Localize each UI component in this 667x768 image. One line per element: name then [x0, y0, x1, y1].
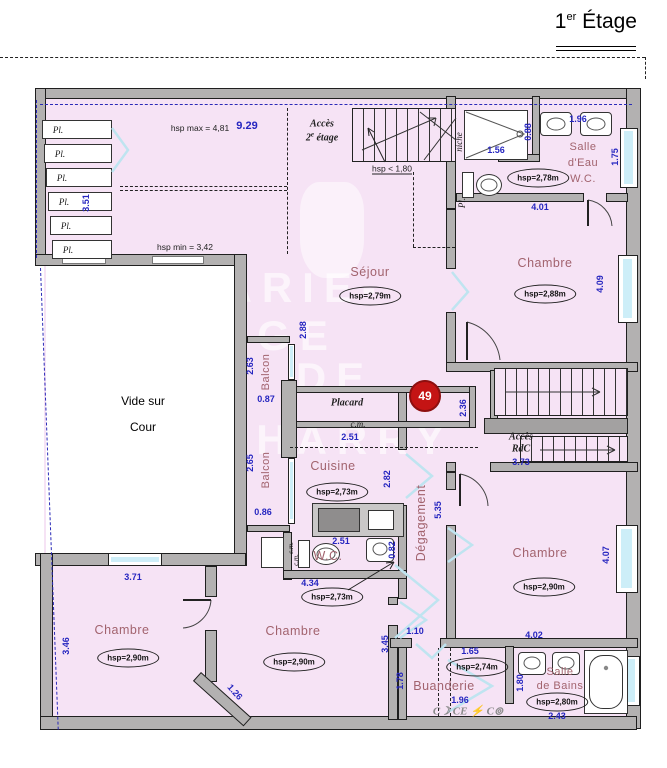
- room-label-cuisine: Cuisine: [310, 459, 355, 473]
- acces-rdc-1: Accès: [509, 432, 533, 443]
- lot-number-badge: 49: [409, 380, 441, 412]
- title-number: 1: [555, 10, 567, 33]
- hsp-chambre-bm: hsp=2,90m: [263, 653, 325, 672]
- dim: 0.82: [387, 541, 397, 559]
- closet-label: Pl.: [57, 173, 67, 183]
- hsp-chambre-tr: hsp=2,88m: [514, 285, 576, 304]
- closet: [50, 216, 112, 235]
- low-ceiling-zone: [413, 172, 414, 247]
- dim: 2.51: [341, 432, 359, 442]
- room-label-chambre-tr: Chambre: [518, 256, 573, 270]
- boundary-line: [645, 57, 646, 79]
- vide-sur-cour-1: Vide sur: [121, 394, 165, 408]
- room-label-salle-bains-2: de Bains: [537, 680, 584, 692]
- hsp-chambre-bl: hsp=2,90m: [97, 649, 159, 668]
- dim: 2.51: [332, 536, 350, 546]
- room-label-chambre-bl: Chambre: [95, 623, 150, 637]
- dim: 3.46: [61, 637, 71, 655]
- window: [288, 344, 295, 380]
- room-label-balcon1: Balcon: [260, 354, 272, 391]
- room-label-degagement: Dégagement: [414, 485, 428, 562]
- title-underline-2: [556, 50, 636, 51]
- dim: 4.01: [531, 202, 549, 212]
- property-line: [36, 100, 37, 258]
- toilet-bowl: [476, 174, 502, 196]
- acces-2e-word: étage: [314, 133, 338, 144]
- dim: 1.75: [610, 148, 620, 166]
- wall: [247, 336, 290, 343]
- courtyard-void: [46, 266, 236, 556]
- hsp-min-label: hsp min = 3,42: [157, 242, 213, 252]
- closet-label: Pl.: [61, 221, 71, 231]
- dim: 2.36: [458, 399, 468, 417]
- wall: [606, 193, 628, 202]
- room-label-placard: Placard: [331, 398, 363, 409]
- wall: [446, 472, 456, 490]
- dim: 2.65: [245, 454, 255, 472]
- wall: [446, 525, 456, 642]
- dim: 4.02: [525, 630, 543, 640]
- hsp-salle-bains: hsp=2,80m: [526, 693, 588, 712]
- vide-sur-cour-2: Cour: [130, 420, 156, 434]
- window: [618, 255, 638, 323]
- hsp-max-label: hsp max = 4,81: [171, 123, 229, 133]
- staircase-down-lower: [520, 436, 628, 462]
- closet-label: Pl.: [53, 125, 63, 135]
- wall-opening: [152, 256, 204, 264]
- staircase-up: [352, 108, 456, 162]
- kitchen-sink: [368, 510, 394, 530]
- room-label-sejour: Séjour: [350, 265, 389, 279]
- hsp-low-label: hsp < 1,80: [372, 164, 412, 175]
- title-underline: [556, 46, 636, 47]
- low-ceiling-zone: [413, 247, 455, 248]
- room-label-chambre-r: Chambre: [513, 546, 568, 560]
- hsp-chambre-r: hsp=2,90m: [513, 578, 575, 597]
- cm-label-2: c.m.: [292, 554, 300, 566]
- wall: [398, 388, 407, 450]
- dim: 5.35: [433, 501, 443, 519]
- dim: 3.51: [81, 194, 91, 212]
- sink: [518, 652, 546, 675]
- wall: [456, 193, 584, 202]
- floor-plan: 1er Étage MARIE-ANGE DE CHARRY: [0, 0, 667, 768]
- hsp-buanderie: hsp=2,74m: [446, 658, 508, 677]
- wall: [532, 96, 540, 160]
- dim: 1.65: [461, 646, 479, 656]
- wall: [290, 386, 476, 393]
- room-label-chambre-bm: Chambre: [266, 624, 321, 638]
- wall: [234, 254, 247, 566]
- dim: 3.73: [512, 457, 530, 467]
- room-label-salle-eau-2: d'Eau: [568, 157, 598, 169]
- title-ordinal: er: [566, 11, 576, 23]
- boundary-line: [0, 57, 645, 58]
- dim: 0.88: [523, 123, 533, 141]
- wall: [35, 88, 634, 99]
- wall: [205, 630, 217, 682]
- window: [288, 458, 295, 524]
- watermark-line2: DE: [296, 354, 374, 402]
- bathtub-inner: [589, 655, 623, 709]
- kitchen-hob: [318, 508, 360, 532]
- closet-label: Pl.: [63, 245, 73, 255]
- dim: 1.96: [451, 695, 469, 705]
- dim: 1.80: [515, 674, 525, 692]
- dim: 1.10: [406, 626, 424, 636]
- dim: 3.45: [380, 635, 390, 653]
- cm-label-1: c.m.: [287, 542, 295, 554]
- acces-rdc-2: RdC: [512, 444, 530, 455]
- closet: [48, 192, 112, 211]
- hsp-break-line: [120, 186, 287, 187]
- dim: 4.34: [301, 578, 319, 588]
- wall: [388, 597, 398, 605]
- acces-2e-1: Accès: [310, 119, 334, 130]
- wall: [469, 386, 476, 428]
- dim: 2.88: [298, 321, 308, 339]
- dim: 0.86: [254, 507, 272, 517]
- hsp-break-line: [120, 190, 287, 191]
- wall: [446, 209, 456, 269]
- dim: 4.09: [595, 275, 605, 293]
- closet: [52, 240, 112, 259]
- closet-label: Pl.: [55, 149, 65, 159]
- window: [616, 525, 638, 593]
- dim: 3.71: [124, 572, 142, 582]
- acces-2e-2: 2e étage: [306, 130, 338, 143]
- dim: 1.96: [569, 114, 587, 124]
- title-word: Étage: [582, 10, 637, 33]
- dim: 4.07: [601, 546, 611, 564]
- watermark-urn: [300, 182, 364, 278]
- dim: 2.43: [548, 711, 566, 721]
- room-label-salle-eau-1: Salle: [570, 141, 597, 153]
- dim: 0.87: [257, 394, 275, 404]
- hsp-sejour: hsp=2,79m: [339, 287, 401, 306]
- wall: [290, 421, 476, 428]
- room-label-wc: W.C.: [313, 549, 342, 563]
- separator-dashed: [290, 447, 478, 448]
- window: [108, 553, 162, 566]
- closet-label: Pl.: [59, 197, 69, 207]
- dim: 1.56: [487, 145, 505, 155]
- staircase-down-upper: [494, 368, 628, 416]
- dim: 1.78: [395, 672, 405, 690]
- niche-label: niche: [454, 132, 464, 152]
- page-title: 1er Étage: [555, 10, 637, 34]
- wall: [505, 646, 514, 704]
- property-line: [40, 104, 632, 105]
- room-label-buanderie: Buanderie: [413, 679, 475, 693]
- window: [620, 128, 638, 188]
- hsp-cuisine: hsp=2,73m: [306, 483, 368, 502]
- stair-landing: [484, 418, 628, 434]
- appliance: [261, 537, 284, 568]
- room-label-salle-bains-1: Salle: [547, 666, 574, 678]
- toilet: [462, 172, 474, 198]
- wall: [446, 462, 456, 472]
- wall: [247, 525, 290, 532]
- separator-dashed: [287, 108, 288, 254]
- dim: 9.29: [236, 120, 257, 132]
- room-label-balcon2: Balcon: [260, 452, 272, 489]
- dim: 2.82: [382, 470, 392, 488]
- room-label-salle-eau-3: W.C.: [570, 173, 596, 185]
- laundry-symbols: C☽ CE ⚡ C⊚: [433, 705, 503, 718]
- pl-label-wc: Pl.: [457, 198, 467, 208]
- placard-cm: c.m.: [351, 419, 366, 429]
- wall: [205, 566, 217, 597]
- sink: [540, 112, 572, 136]
- hsp-salle-eau: hsp=2,78m: [507, 169, 569, 188]
- hsp-wc: hsp=2,73m: [301, 588, 363, 607]
- wall: [390, 638, 412, 648]
- dim: 2.63: [245, 357, 255, 375]
